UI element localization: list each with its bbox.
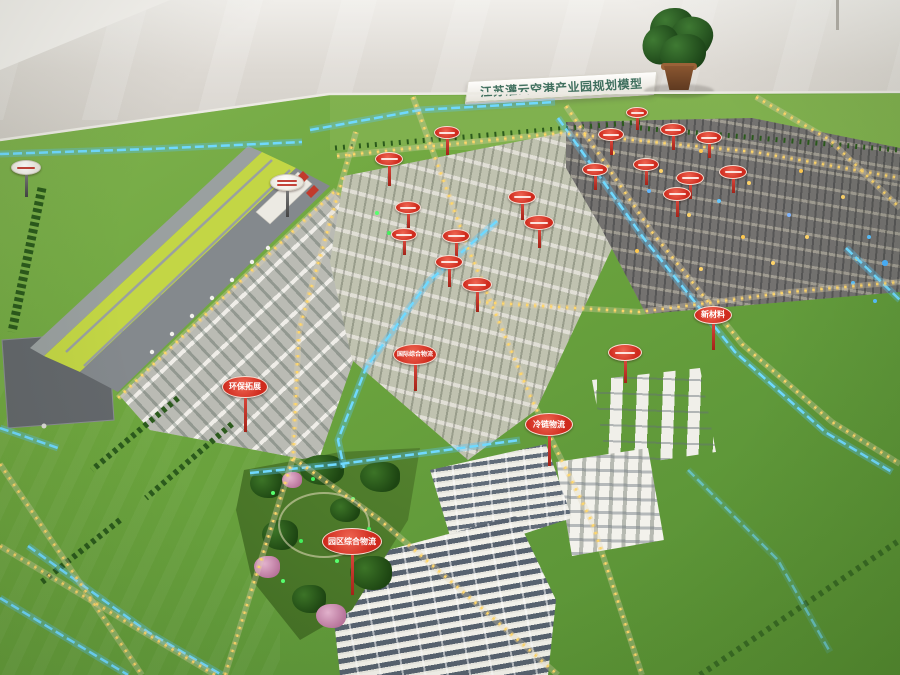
sign-pole (388, 166, 391, 186)
sign-illegible-text (396, 234, 412, 236)
sign-plate (633, 158, 659, 171)
sign-pole (448, 269, 451, 287)
sign-pole (594, 176, 597, 190)
sign-pole (414, 365, 417, 391)
zone-sign-冷链物流: 冷链物流 (525, 413, 573, 466)
rivers (0, 102, 900, 675)
sign-pole (476, 292, 479, 312)
model-room-photo: 江苏灌云空港产业园规划模型 新材料环保拓展冷链物流园区综合物流国际综合物流 (0, 0, 900, 675)
sign-illegible-text (638, 164, 654, 166)
sign-pole (446, 139, 449, 155)
zone-sign (719, 165, 747, 193)
zone-sign-园区综合物流: 园区综合物流 (322, 528, 382, 595)
sign-plate: 国际综合物流 (393, 344, 437, 365)
sign-plate (608, 344, 642, 361)
zone-sign (696, 131, 722, 158)
sign-pole (286, 191, 289, 217)
zone-sign (375, 152, 403, 186)
sign-plate (598, 128, 624, 141)
sign-plate (391, 228, 417, 241)
sign-illegible-text (701, 137, 717, 139)
zone-sign-国际综合物流: 国际综合物流 (393, 344, 437, 391)
sign-plate (395, 201, 421, 214)
sign-plate (719, 165, 747, 179)
sign-pole (676, 201, 679, 217)
zone-sign (626, 107, 648, 130)
model-lines-overlay (0, 0, 900, 675)
sign-label: 国际综合物流 (397, 352, 433, 358)
sign-plate (435, 255, 463, 269)
sign-pole (25, 175, 28, 197)
zone-sign (462, 277, 492, 312)
zone-sign (663, 187, 691, 217)
sign-plate (676, 171, 704, 185)
sign-plate (582, 163, 608, 176)
sign-pole (538, 230, 541, 248)
sign-label: 冷链物流 (533, 421, 565, 429)
zone-sign (270, 174, 304, 217)
lit-roads (0, 97, 900, 675)
zone-sign (435, 255, 463, 287)
sign-pole (708, 144, 711, 158)
sign-plate (524, 215, 554, 230)
sign-illegible-text (277, 184, 297, 186)
zone-sign (395, 201, 421, 228)
hedgerows (12, 122, 900, 675)
sign-illegible-text (682, 177, 699, 179)
sign-pole (636, 118, 639, 130)
sign-plate (660, 123, 686, 136)
sign-illegible-text (448, 235, 465, 237)
sign-illegible-text (468, 284, 486, 286)
sign-plate (663, 187, 691, 201)
sign-pole (407, 214, 410, 228)
zone-sign (524, 215, 554, 248)
sign-plate (508, 190, 536, 204)
sign-plate (626, 107, 648, 118)
sign-pole (672, 136, 675, 150)
sign-illegible-text (17, 167, 35, 169)
sign-plate (375, 152, 403, 166)
zone-sign (582, 163, 608, 190)
sign-illegible-text (514, 196, 531, 198)
parking-mark (42, 424, 47, 429)
sign-label: 环保拓展 (229, 383, 261, 391)
sign-plate (462, 277, 492, 292)
sign-pole (712, 324, 715, 350)
sign-pole (403, 241, 406, 255)
zone-sign (391, 228, 417, 255)
zone-sign (633, 158, 659, 185)
zone-sign (434, 126, 460, 155)
sign-label: 新材料 (701, 311, 725, 319)
sign-pole (351, 555, 354, 595)
sign-illegible-text (631, 112, 644, 114)
zone-sign-环保拓展: 环保拓展 (222, 376, 268, 432)
sign-plate (442, 229, 470, 243)
sign-plate (11, 160, 41, 175)
sign-illegible-text (725, 171, 742, 173)
sign-label: 园区综合物流 (328, 538, 376, 546)
zone-sign (11, 160, 41, 197)
sign-illegible-text (400, 207, 416, 209)
sign-illegible-text (587, 169, 603, 171)
sign-plate (434, 126, 460, 139)
sign-illegible-text (665, 129, 681, 131)
zone-sign (660, 123, 686, 150)
sign-plate: 园区综合物流 (322, 528, 382, 555)
sign-illegible-text (439, 132, 455, 134)
sign-illegible-text (615, 352, 635, 354)
sign-plate (270, 174, 304, 191)
sign-plate: 冷链物流 (525, 413, 573, 436)
sign-illegible-text (381, 158, 398, 160)
sign-pole (645, 171, 648, 185)
sign-illegible-text (669, 193, 686, 195)
sign-pole (732, 179, 735, 193)
zone-sign (608, 344, 642, 383)
zone-sign (598, 128, 624, 155)
sign-pole (624, 361, 627, 383)
sign-pole (548, 436, 551, 466)
sign-illegible-text (530, 222, 548, 224)
sign-pole (244, 398, 247, 432)
sign-plate (696, 131, 722, 144)
sign-plate: 环保拓展 (222, 376, 268, 398)
sign-illegible-text (277, 180, 297, 182)
sign-plate: 新材料 (694, 306, 732, 324)
sign-illegible-text (441, 261, 458, 263)
zone-sign-新材料: 新材料 (694, 306, 732, 350)
sign-illegible-text (603, 134, 619, 136)
sign-pole (610, 141, 613, 155)
